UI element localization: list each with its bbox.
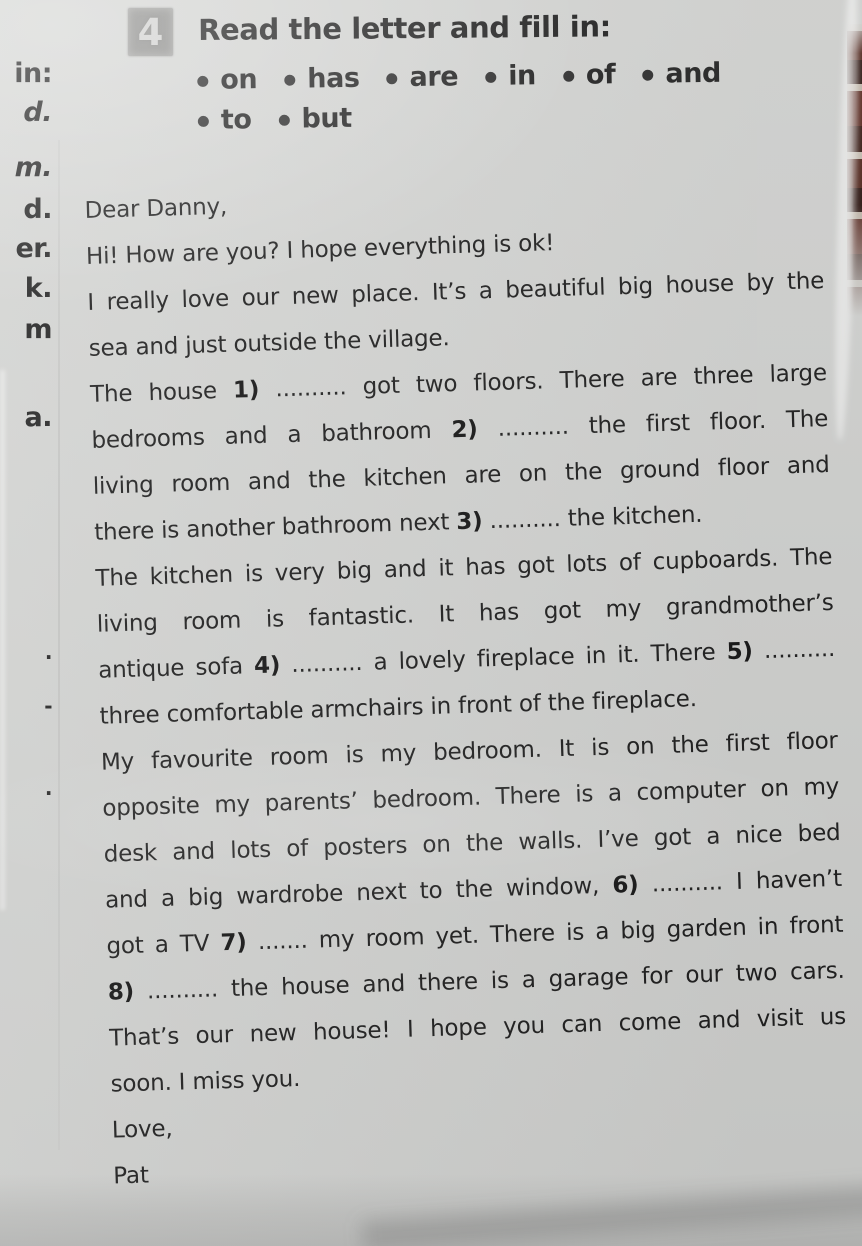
blank-number: 1) xyxy=(233,377,260,404)
exercise-number: 4 xyxy=(138,14,164,51)
page-crease xyxy=(58,140,60,1150)
margin-fragment: a. xyxy=(0,402,52,433)
letter-text: three comfortable armchairs in front of … xyxy=(99,686,697,730)
letter-text: The house xyxy=(90,378,234,408)
blank-number: 7) xyxy=(220,930,247,957)
letter-text: Love, xyxy=(112,1116,173,1144)
margin-fragment: in: xyxy=(0,58,52,89)
word-bank-word: of xyxy=(586,59,616,90)
word-bank-item: has xyxy=(284,62,360,94)
bullet-icon xyxy=(197,75,208,86)
margin-fragment: m xyxy=(0,314,52,345)
bullet-icon xyxy=(278,114,289,125)
word-bank-word: are xyxy=(409,61,458,93)
blank-number: 5) xyxy=(726,638,753,665)
bullet-icon xyxy=(485,71,496,82)
exercise-title: Read the letter and fill in: xyxy=(198,9,611,47)
word-bank-item: are xyxy=(386,61,458,93)
letter-text: soon. I miss you. xyxy=(110,1066,300,1098)
margin-fragment: d. xyxy=(0,97,52,128)
letter-text: .......... the kitchen. xyxy=(482,502,703,535)
letter-text: there is another bathroom next xyxy=(94,509,457,546)
bullet-icon xyxy=(386,73,397,84)
letter-text: .......... I haven’t xyxy=(638,866,842,898)
word-bank-word: in xyxy=(508,60,536,91)
blank-number: 3) xyxy=(456,508,483,535)
letter-text: .......... a lovely fireplace in it. The… xyxy=(280,639,727,678)
exercise-number-badge: 4 xyxy=(128,8,173,56)
word-bank-item: but xyxy=(278,102,352,134)
margin-fragment: - xyxy=(0,694,52,718)
letter-text: and a big wardrobe next to the window, xyxy=(105,873,613,914)
letter-text: sea and just outside the village. xyxy=(88,325,450,362)
letter-text: .......... xyxy=(752,636,835,664)
word-bank-word: on xyxy=(220,64,257,96)
word-bank-word: to xyxy=(221,104,252,135)
page-left-edge-highlight xyxy=(0,370,5,910)
bullet-icon xyxy=(642,69,653,80)
margin-fragment: . xyxy=(0,640,52,664)
blank-number: 2) xyxy=(451,416,478,443)
word-bank-item: in xyxy=(485,60,536,92)
word-bank-item: and xyxy=(642,57,721,89)
blank-number: 4) xyxy=(254,652,281,679)
blank-number: 6) xyxy=(612,872,639,899)
word-bank-item: to xyxy=(198,104,252,136)
margin-fragment: er. xyxy=(0,233,52,264)
word-bank-word: has xyxy=(307,62,360,94)
word-bank-word: and xyxy=(665,57,721,89)
margin-fragment: k. xyxy=(0,273,52,304)
word-bank-row: tobut xyxy=(198,93,722,140)
word-bank-item: of xyxy=(563,59,616,91)
margin-fragment: m. xyxy=(0,152,52,183)
letter-text: antique sofa xyxy=(98,653,255,684)
letter-text: ....... my room yet. There is a big gard… xyxy=(246,912,843,956)
blank-number: 8) xyxy=(107,979,134,1006)
letter-text: .......... got two floors. There are thr… xyxy=(259,360,827,403)
margin-fragment: . xyxy=(0,776,52,800)
letter-text: got a TV xyxy=(106,930,221,959)
word-bank-item: on xyxy=(197,64,257,96)
letter-text: bedrooms and a bathroom xyxy=(91,417,452,454)
margin-fragment: d. xyxy=(0,194,52,225)
textbook-page-photo: 4 Read the letter and fill in: onhasarei… xyxy=(0,0,862,1246)
bullet-icon xyxy=(563,70,574,81)
word-bank: onhasareinofandtobut xyxy=(197,53,722,140)
letter-text: Hi! How are you? I hope everything is ok… xyxy=(86,230,555,270)
bullet-icon xyxy=(198,115,209,126)
letter-body: Dear Danny,Hi! How are you? I hope every… xyxy=(84,166,851,1199)
bullet-icon xyxy=(284,74,295,85)
letter-text: .......... the first floor. The xyxy=(477,406,828,442)
letter-text: Pat xyxy=(113,1163,149,1190)
bottom-shadow-streak xyxy=(362,1183,862,1246)
letter-text: Dear Danny, xyxy=(84,194,227,224)
word-bank-word: but xyxy=(301,102,352,134)
